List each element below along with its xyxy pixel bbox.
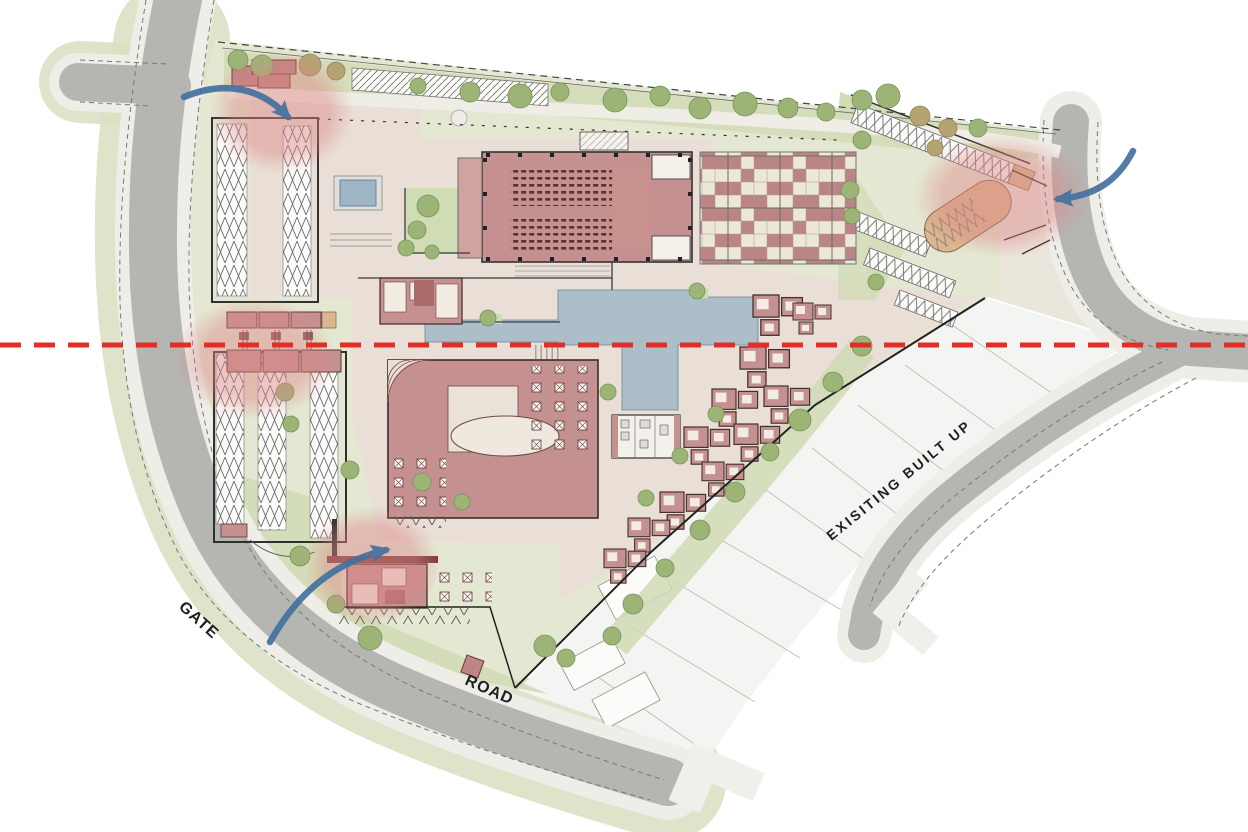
- site-plan-page: GATE ROAD EXISITING BUILT UP: [0, 0, 1248, 832]
- multipurpose-hall: [458, 132, 692, 276]
- dining-tables: [520, 366, 594, 450]
- auditorium-seating: [510, 170, 612, 206]
- clubhouse-annex: [380, 278, 462, 324]
- clubhouse-block: [388, 352, 598, 528]
- site-plan-canvas: GATE ROAD EXISITING BUILT UP: [0, 0, 1248, 832]
- utility-block: [612, 415, 680, 458]
- reflecting-pool: [334, 176, 382, 210]
- highlight-south-service-entry: [304, 506, 440, 626]
- highlight-west-gate-entry: [175, 296, 335, 420]
- checkerboard-plaza: [700, 152, 856, 264]
